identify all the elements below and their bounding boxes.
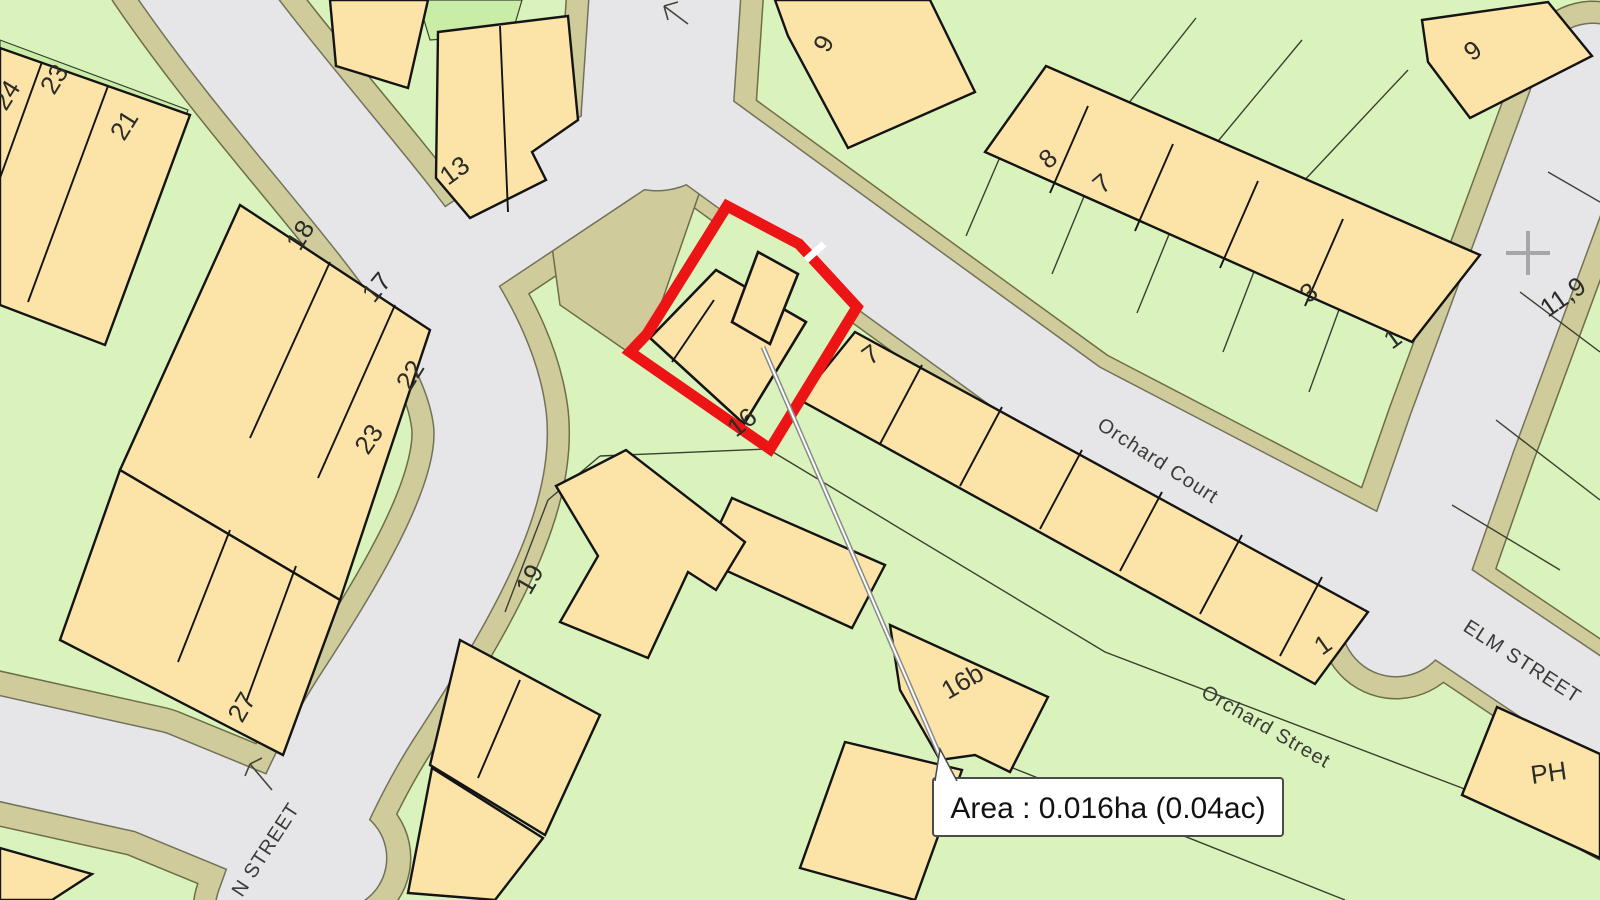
plot-number-label: PH: [1529, 755, 1569, 790]
area-label: Area : 0.016ha (0.04ac): [950, 792, 1265, 825]
map-canvas[interactable]: 24 23 21 13 18 17 22 23 19 27 9 8 7 3 1 …: [0, 0, 1600, 900]
